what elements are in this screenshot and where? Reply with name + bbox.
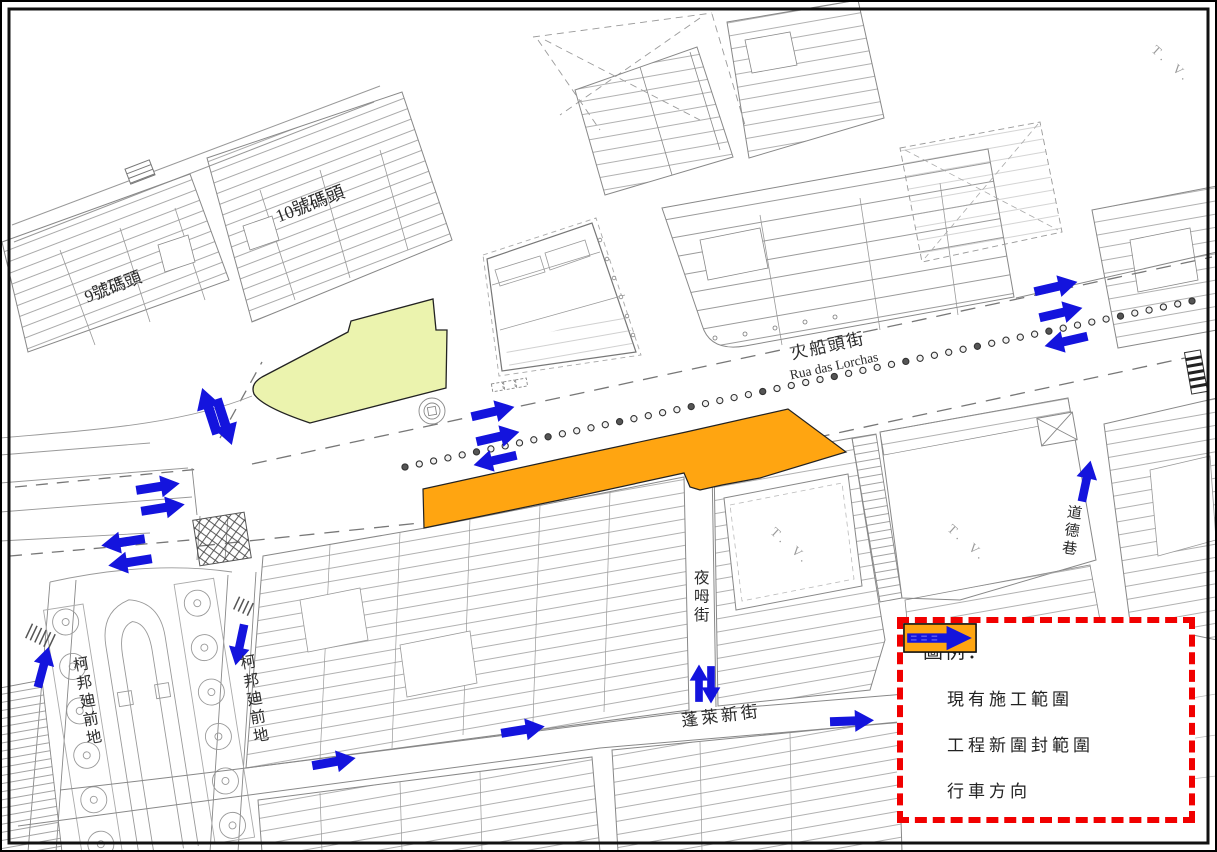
- legend-item-new-enclosure: 工程新圍封範圍: [921, 720, 1189, 766]
- legend-label-new-enclosure: 工程新圍封範圍: [947, 731, 1094, 756]
- legend-item-existing-works: 現有施工範圍: [921, 674, 1189, 720]
- legend-label-existing-works: 現有施工範圍: [947, 685, 1073, 710]
- traffic-direction-arrow-icon: [903, 623, 977, 653]
- legend-box: 圖例： 現有施工範圍 工程新圍封範圍 行車方向: [897, 617, 1195, 823]
- construction-traffic-plan: 9號碼頭 10號碼頭 火船頭街 Rua das Lorchas 夜呣街 蓬萊新街…: [0, 0, 1217, 852]
- crossed-box-symbol: [1037, 412, 1077, 446]
- legend-item-traffic-direction: 行車方向: [921, 766, 1189, 812]
- legend-label-traffic-direction: 行車方向: [947, 777, 1031, 802]
- ye-mou-street-label: 夜呣街: [692, 569, 708, 625]
